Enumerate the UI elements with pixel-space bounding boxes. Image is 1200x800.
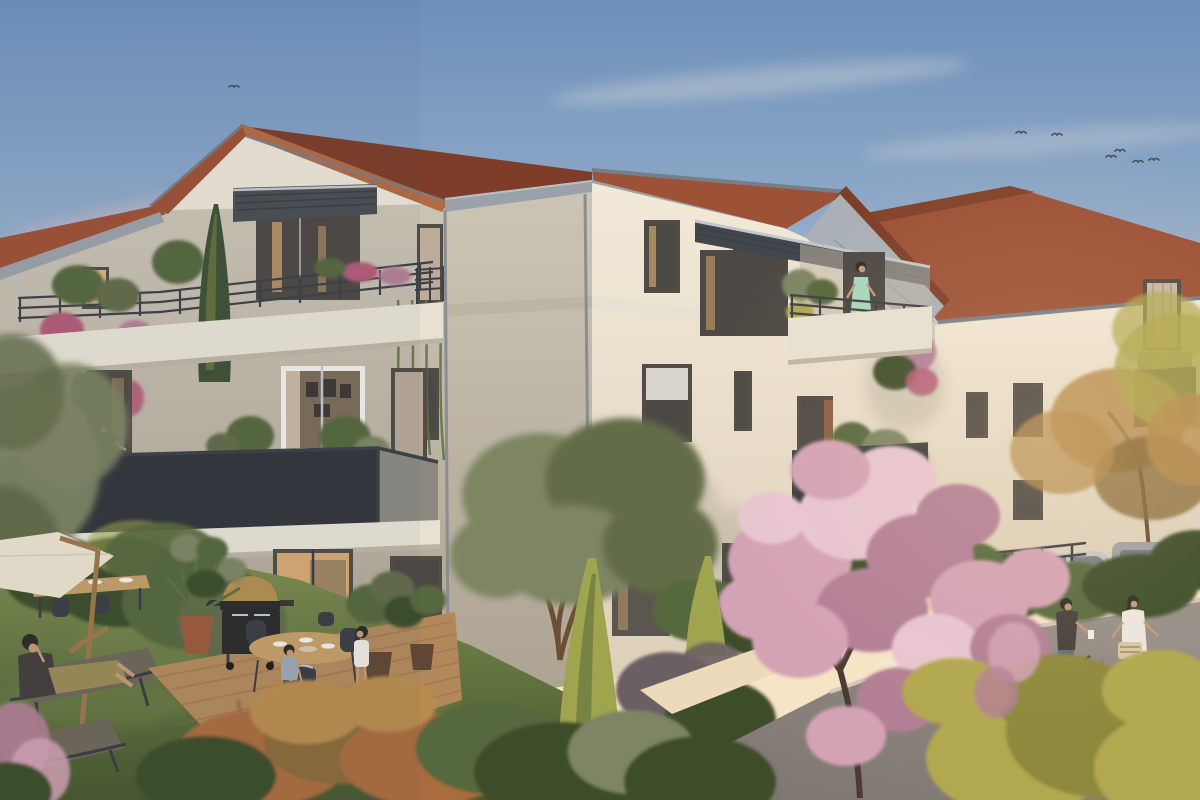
lit-sliver [706, 256, 715, 330]
cool-shade-tint [0, 0, 420, 800]
render-viewport [0, 0, 1200, 800]
lit-curtain-sliver [649, 226, 656, 287]
exterior-render [0, 0, 1200, 800]
window-blind [646, 368, 688, 400]
